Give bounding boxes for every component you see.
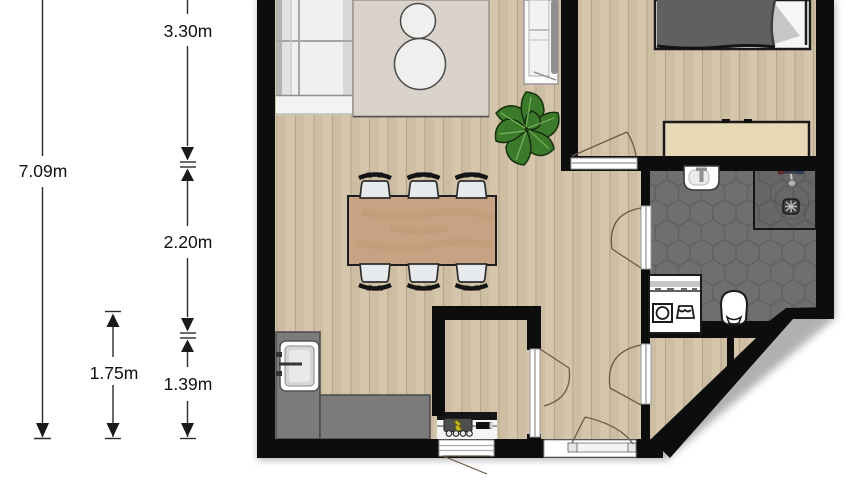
svg-text:1.75m: 1.75m bbox=[90, 363, 139, 383]
svg-text:2.20m: 2.20m bbox=[164, 232, 213, 252]
svg-text:7.09m: 7.09m bbox=[19, 161, 68, 181]
svg-text:3.30m: 3.30m bbox=[164, 21, 213, 41]
svg-text:1.39m: 1.39m bbox=[164, 374, 213, 394]
